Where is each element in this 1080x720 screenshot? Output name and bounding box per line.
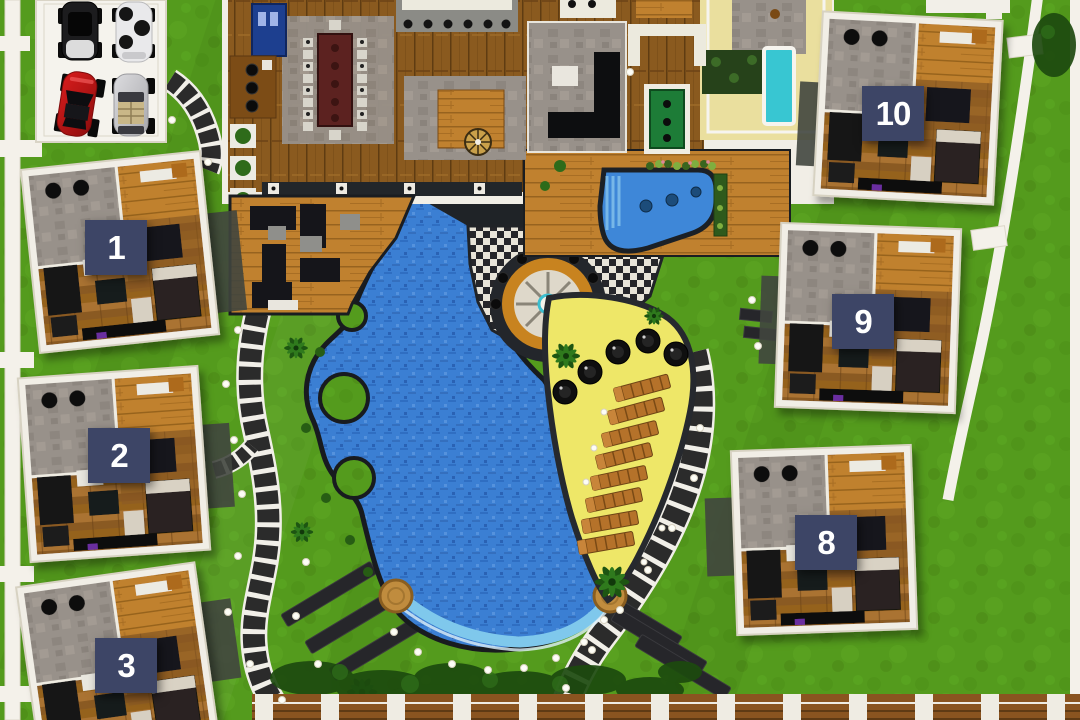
kitchen-room — [230, 56, 276, 118]
bottom-fence — [252, 694, 1080, 720]
billiard-room — [644, 84, 690, 154]
villa-2-marker[interactable]: 2 — [88, 428, 150, 483]
villa-1-marker[interactable]: 1 — [85, 220, 147, 275]
foyer — [404, 76, 526, 160]
parking-pad — [36, 0, 166, 142]
villa-10-marker[interactable]: 10 — [862, 86, 924, 141]
dining-room — [282, 16, 394, 144]
resort-site-plan: 1 2 3 8 9 10 — [0, 0, 1080, 720]
villa-8-marker[interactable]: 8 — [795, 515, 857, 570]
villa-9-marker[interactable]: 9 — [832, 294, 894, 349]
lap-pool — [764, 48, 794, 124]
lounge-room — [528, 22, 626, 152]
top-terrace-bar — [396, 0, 518, 32]
right-edge-road — [1070, 0, 1080, 720]
villa-3-marker[interactable]: 3 — [95, 638, 157, 693]
pool-side-wall — [262, 182, 522, 196]
golf-cart-icon — [112, 2, 155, 62]
blue-cabinet — [252, 4, 286, 56]
top-right-structure-tab — [986, 10, 1002, 19]
atv-icon — [58, 2, 102, 60]
